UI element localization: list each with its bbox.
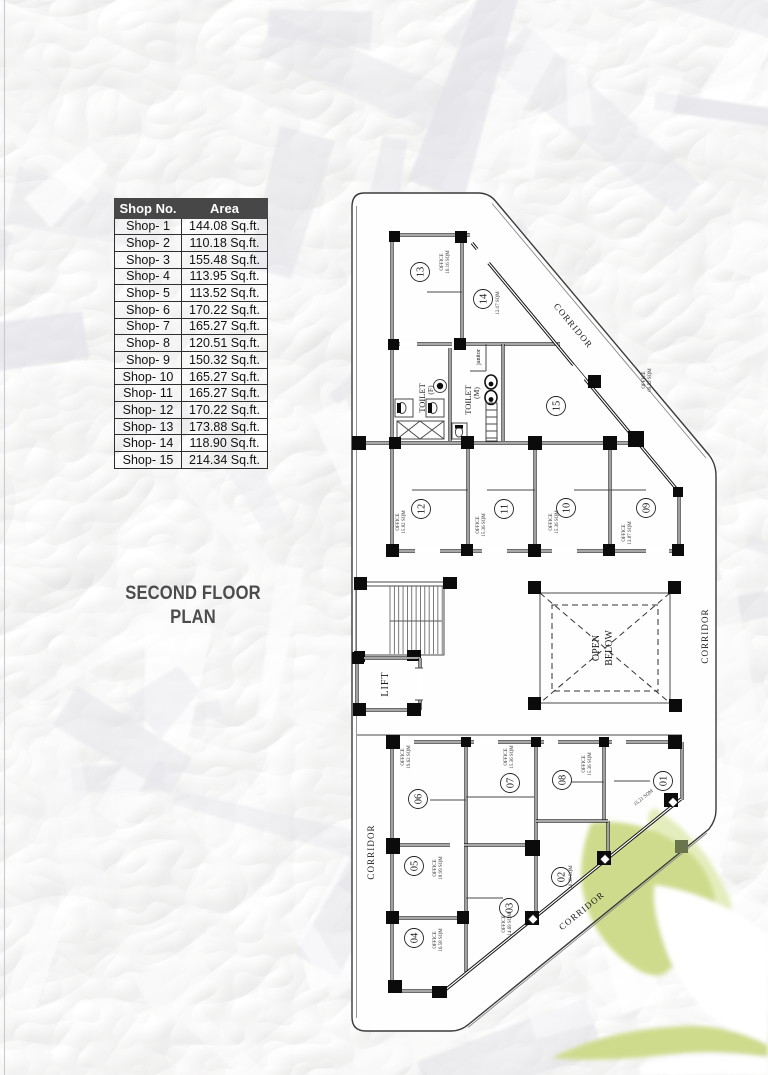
svg-text:OFFICE: OFFICE: [476, 516, 481, 533]
svg-text:OFFICE: OFFICE: [622, 524, 627, 541]
svg-text:16.16 SQM: 16.16 SQM: [446, 250, 451, 274]
svg-text:(F): (F): [426, 385, 435, 395]
svg-text:03: 03: [505, 903, 516, 914]
svg-text:OPEN: OPEN: [591, 635, 602, 661]
svg-text:OFFICE: OFFICE: [582, 755, 587, 772]
svg-text:BELOW: BELOW: [604, 630, 615, 666]
svg-text:04: 04: [410, 932, 421, 943]
svg-text:15.36 SQM: 15.36 SQM: [588, 752, 593, 776]
svg-text:14: 14: [479, 293, 490, 304]
svg-text:08: 08: [558, 775, 569, 786]
svg-text:19.62 SQM: 19.62 SQM: [407, 745, 412, 769]
svg-text:OFFICE: OFFICE: [502, 915, 507, 932]
svg-text:13.87 SQM: 13.87 SQM: [628, 521, 633, 545]
svg-text:OFFICE: OFFICE: [549, 513, 554, 530]
svg-text:02: 02: [557, 872, 568, 883]
svg-text:OFFICE: OFFICE: [396, 513, 401, 530]
svg-text:09.52 SQM: 09.52 SQM: [648, 368, 653, 392]
svg-text:12: 12: [417, 504, 428, 515]
svg-text:CORRIDOR: CORRIDOR: [366, 824, 376, 879]
svg-text:OFFICE: OFFICE: [433, 931, 438, 948]
svg-text:07: 07: [506, 778, 517, 789]
svg-text:OFFICE: OFFICE: [642, 371, 647, 388]
svg-text:OFFICE: OFFICE: [401, 748, 406, 765]
svg-text:15.36 SQM: 15.36 SQM: [482, 513, 487, 537]
svg-text:15: 15: [552, 401, 563, 412]
svg-text:OFFICE: OFFICE: [504, 748, 509, 765]
svg-text:01: 01: [659, 776, 670, 787]
svg-text:06: 06: [414, 794, 425, 805]
svg-text:09: 09: [642, 503, 653, 514]
svg-text:05: 05: [410, 861, 421, 872]
svg-text:16.58 SQM: 16.58 SQM: [439, 928, 444, 952]
svg-text:janitor: janitor: [476, 349, 482, 366]
svg-text:11: 11: [500, 504, 511, 514]
svg-text:13: 13: [416, 267, 427, 278]
svg-text:(M): (M): [472, 387, 481, 399]
svg-text:LIFT: LIFT: [380, 671, 391, 696]
svg-text:18.99 SQM: 18.99 SQM: [439, 856, 444, 880]
svg-text:12.07 SQM: 12.07 SQM: [496, 291, 501, 315]
svg-text:OFFICE: OFFICE: [440, 253, 445, 270]
svg-text:15.36 SQM: 15.36 SQM: [555, 510, 560, 534]
svg-text:CORRIDOR: CORRIDOR: [700, 608, 710, 663]
svg-text:14.69 SQM: 14.69 SQM: [508, 912, 513, 936]
svg-text:15.36 SQM: 15.36 SQM: [510, 745, 515, 769]
svg-text:10: 10: [562, 503, 573, 514]
svg-text:OFFICE: OFFICE: [433, 859, 438, 876]
svg-text:10.38 SQM: 10.38 SQM: [569, 865, 574, 889]
svg-text:15.82 SQM: 15.82 SQM: [402, 510, 407, 534]
